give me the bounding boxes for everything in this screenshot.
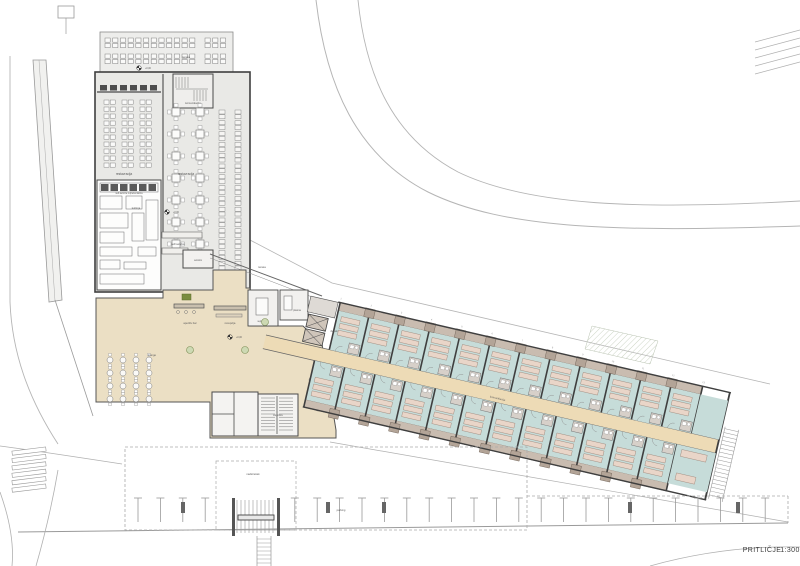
lounge-table (146, 357, 152, 363)
exit-stair-tread (712, 483, 726, 486)
banquet-seat (110, 156, 115, 160)
hotel-wing: 12345678910111213 komunikacija (251, 284, 747, 508)
sink (332, 367, 337, 371)
booth (235, 207, 241, 211)
lounge-table (120, 357, 126, 363)
sink (531, 387, 536, 391)
curb-left-2 (36, 470, 58, 566)
banquet-seat (122, 128, 127, 132)
banquet-seat (128, 121, 133, 125)
booth (219, 244, 225, 248)
chair (168, 198, 172, 202)
banquet-seat (122, 135, 127, 139)
kitchen-appliance (139, 184, 147, 191)
ramp-wall (277, 498, 280, 536)
booth (235, 153, 241, 157)
parked-element (736, 502, 740, 513)
parked-element (628, 502, 632, 513)
lounge-table (133, 383, 139, 389)
elevation-marker-icon (228, 335, 233, 340)
planter-box (182, 294, 191, 300)
kitchen-appliance (149, 184, 157, 191)
chair (122, 393, 125, 396)
chair (174, 117, 178, 121)
terrace-table (113, 59, 118, 63)
restaurant-label-left: restavracija (116, 172, 133, 176)
booth (235, 110, 241, 114)
booth (219, 212, 225, 216)
terrace-table (205, 43, 210, 47)
lounge-table (146, 370, 152, 376)
kitchen-unit (100, 213, 128, 228)
axis-number: 8 (552, 347, 554, 349)
chair (181, 176, 185, 180)
booth (219, 218, 225, 222)
banquet-seat (122, 142, 127, 146)
axis-number: 10 (611, 361, 615, 364)
chair (205, 220, 209, 224)
terrace-table (151, 54, 156, 58)
exit-stair-tread (722, 440, 736, 443)
sink (574, 423, 579, 427)
planter (187, 347, 194, 354)
banquet-seat (122, 100, 127, 104)
booth (219, 169, 225, 173)
chair (198, 139, 202, 143)
green-patch (585, 326, 658, 364)
exit-stair-tread (724, 432, 738, 435)
terrace-table (182, 43, 187, 47)
sink (453, 395, 458, 399)
terrace-table (128, 43, 133, 47)
terrace-table (220, 54, 225, 58)
banquet-seat (146, 135, 151, 139)
chair (122, 364, 125, 367)
bar-item (140, 85, 147, 91)
terrace-table (105, 54, 110, 58)
sink (423, 388, 428, 392)
booth (219, 175, 225, 179)
terrace-table (159, 54, 164, 58)
dining-table (172, 108, 180, 116)
self-service-counter-1 (162, 232, 202, 238)
banquet-seat (128, 163, 133, 167)
terrace-table (136, 43, 141, 47)
chair (168, 110, 172, 114)
banquet-seat (146, 128, 151, 132)
chair (205, 110, 209, 114)
terrace-table (213, 38, 218, 42)
chair (168, 154, 172, 158)
terrace-table (113, 38, 118, 42)
terrace-table (113, 54, 118, 58)
axis-number: 11 (642, 368, 645, 371)
banquet-seat (128, 114, 133, 118)
booth (235, 164, 241, 168)
elevator-label: dvigalo (330, 331, 338, 333)
sink (634, 437, 639, 441)
dining-table (196, 108, 204, 116)
banquet-seat (110, 100, 115, 104)
chair (109, 393, 112, 396)
banquet-seat (110, 128, 115, 132)
booth (235, 147, 241, 151)
chair (174, 227, 178, 231)
elevation-marker-icon (137, 66, 142, 71)
booth (219, 229, 225, 233)
chair (198, 205, 202, 209)
chair (181, 220, 185, 224)
dining-table (172, 152, 180, 160)
terrace-table (174, 38, 179, 42)
lounge-table (107, 383, 113, 389)
banquet-seat (140, 149, 145, 153)
bar-item (110, 85, 117, 91)
banquet-seat (104, 135, 109, 139)
elevation-marker-text: +0,00 (236, 337, 243, 339)
chair (135, 403, 138, 406)
chair (168, 176, 172, 180)
exit-stair-tread (719, 452, 733, 455)
sink (561, 394, 566, 398)
chair (135, 380, 138, 383)
kitchen-unit (100, 274, 144, 284)
drawing-scale: 1:300 (780, 547, 800, 554)
chair (174, 104, 178, 108)
chair (205, 154, 209, 158)
booth (235, 142, 241, 146)
chair (174, 161, 178, 165)
chair (192, 176, 196, 180)
booth (219, 126, 225, 130)
lounge-table (146, 396, 152, 402)
banquet-seat (140, 121, 145, 125)
chair (122, 380, 125, 383)
kitchen-unit (138, 247, 156, 256)
terrace-table (213, 54, 218, 58)
banquet-seat (146, 121, 151, 125)
booth (235, 244, 241, 248)
banquet-seat (104, 156, 109, 160)
sink (501, 380, 506, 384)
crosswalk-stripe (12, 462, 46, 470)
banquet-seat (128, 135, 133, 139)
kitchen-label: kuhinja (132, 206, 141, 210)
banquet-seat (122, 107, 127, 111)
terrace-table (105, 43, 110, 47)
windbreak-room (183, 250, 213, 268)
lounge-table (133, 370, 139, 376)
aperitif-bar-label: aperitiv bar (183, 321, 196, 325)
road-edge-outer (316, 0, 800, 229)
booth (235, 201, 241, 205)
booth (219, 153, 225, 157)
chair (168, 220, 172, 224)
booth (219, 201, 225, 205)
meeting-table (256, 298, 268, 315)
lounge-table (133, 396, 139, 402)
exit-stair-tread (725, 429, 739, 432)
exit-stair-rail (722, 430, 739, 502)
chair (192, 154, 196, 158)
chair (135, 390, 138, 393)
bar-item (100, 85, 107, 91)
axis-number: 2 (370, 305, 372, 307)
booth (235, 186, 241, 190)
parking-columns (134, 498, 769, 522)
chair (148, 393, 151, 396)
floor-plan-drawing: terasa komunikacija restavracija restavr… (0, 0, 800, 566)
exit-stair-tread (710, 491, 724, 494)
self-service-counter-label: self-service reprezentanca (116, 192, 144, 195)
booth (219, 121, 225, 125)
axis-number: 4 (431, 319, 433, 321)
chair (192, 220, 196, 224)
chair (205, 242, 209, 246)
kitchen-appliance (111, 184, 119, 191)
banquet-seat (128, 128, 133, 132)
terrace-label: terasa (182, 55, 190, 59)
booth (235, 250, 241, 254)
crosswalk-stripe (12, 454, 46, 462)
booth (235, 126, 241, 130)
booth (235, 255, 241, 259)
banquet-seat (128, 100, 133, 104)
sink (652, 414, 657, 418)
sink (393, 381, 398, 385)
chair (109, 364, 112, 367)
booth (235, 218, 241, 222)
reception-desk (214, 306, 246, 310)
lounge-table (120, 383, 126, 389)
chair (135, 354, 138, 357)
chair (198, 183, 202, 187)
wing-rooms: 12345678910111213 (251, 284, 747, 508)
parked-element (382, 502, 386, 513)
lounge-table (146, 383, 152, 389)
chair (198, 214, 202, 218)
terrace-table (213, 59, 218, 63)
banquet-seat (104, 107, 109, 111)
axis-number: 6 (491, 333, 493, 335)
small-terrace-label: terasa (258, 265, 266, 269)
bar-item (120, 85, 127, 91)
chair (174, 126, 178, 130)
dining-table (172, 218, 180, 226)
terrace-table (190, 43, 195, 47)
dining-table (196, 218, 204, 226)
banquet-seat (140, 114, 145, 118)
kitchen-unit (146, 200, 158, 240)
banquet-seat (128, 107, 133, 111)
booth (235, 180, 241, 184)
booth (235, 115, 241, 119)
planter (242, 347, 249, 354)
terrace-table (120, 43, 125, 47)
terrace-table (182, 38, 187, 42)
banquet-seat (146, 163, 151, 167)
banquet-seat (110, 135, 115, 139)
planter (262, 319, 269, 326)
chair (205, 198, 209, 202)
banquet-seat (128, 149, 133, 153)
reception-label: recepcija (225, 321, 236, 325)
chair (198, 170, 202, 174)
windbreak-label: vetrolov (194, 259, 203, 262)
sink (410, 359, 415, 363)
exit-stair-tread (718, 456, 732, 459)
axis-number: 9 (582, 354, 584, 356)
lounge-table (120, 396, 126, 402)
terrace-table (190, 59, 195, 63)
booth (235, 121, 241, 125)
chair (192, 242, 196, 246)
booth (219, 164, 225, 168)
exit-stair-tread (715, 471, 729, 474)
sink (362, 374, 367, 378)
chair (198, 192, 202, 196)
bar-item (130, 85, 137, 91)
chair (135, 393, 138, 396)
terrace-table (174, 43, 179, 47)
elevation-marker-text: +0,00 (173, 212, 180, 214)
axis-number: 12 (672, 375, 676, 378)
sink (591, 401, 596, 405)
chair (148, 364, 151, 367)
aperitif-bar-counter (174, 304, 204, 308)
booth (235, 169, 241, 173)
booth (219, 234, 225, 238)
ramp-wall (232, 498, 235, 536)
exit-stair-tread (716, 468, 730, 471)
drawing-title: PRITLIČJE (743, 545, 782, 554)
canopy-label: nadstrešek (246, 472, 260, 476)
terrace-table (182, 59, 187, 63)
banquet-seat (140, 107, 145, 111)
booth (235, 132, 241, 136)
booth (219, 266, 225, 270)
ramp-platform (238, 515, 274, 520)
office-label: pisarna (293, 309, 301, 312)
banquet-seat (128, 156, 133, 160)
chair (192, 198, 196, 202)
exit-stair-tread (714, 475, 728, 478)
chair (181, 132, 185, 136)
booth (219, 110, 225, 114)
banquet-seat (146, 100, 151, 104)
terrace-table (120, 59, 125, 63)
booth (235, 158, 241, 162)
terrace-table (190, 54, 195, 58)
chair (174, 183, 178, 187)
terrace-table (167, 43, 172, 47)
axis-number: 3 (400, 312, 402, 314)
lounge-table (107, 370, 113, 376)
exit-stair-tread (723, 436, 737, 439)
chair (198, 117, 202, 121)
parking-boundary (125, 447, 527, 530)
terrace-table (144, 43, 149, 47)
banquet-seat (140, 135, 145, 139)
banquet-seat (110, 149, 115, 153)
terrace-table (205, 59, 210, 63)
road-crosswalk-hatch (755, 30, 800, 74)
exit-stair-tread (720, 448, 734, 451)
chair (198, 104, 202, 108)
terrace-table (128, 59, 133, 63)
booth (219, 115, 225, 119)
terrace-table (167, 59, 172, 63)
kitchen-unit (100, 260, 120, 269)
road-edge-inner (358, 0, 800, 205)
curb-left-3 (0, 492, 13, 566)
chair (148, 403, 151, 406)
booth (219, 223, 225, 227)
elevation-marker-text: +0,00 (145, 68, 152, 70)
chair (174, 139, 178, 143)
restaurant-label-right: restavracija (178, 172, 195, 176)
terrace-table (174, 54, 179, 58)
office-desk (284, 296, 292, 310)
pergola-strip (33, 60, 62, 302)
chair (192, 132, 196, 136)
sink (622, 408, 627, 412)
chair (205, 176, 209, 180)
banquet-seat (104, 142, 109, 146)
self-service-label: self-service (171, 242, 185, 246)
exit-stair-tread (713, 479, 727, 482)
south-annex: stopnišče (212, 392, 298, 436)
terrace-table (205, 54, 210, 58)
chair (148, 380, 151, 383)
chair (109, 377, 112, 380)
chair (174, 192, 178, 196)
terrace-table (136, 38, 141, 42)
chair (109, 354, 112, 357)
banquet-seat (140, 163, 145, 167)
terrace-table (190, 38, 195, 42)
chair (148, 367, 151, 370)
sink (604, 430, 609, 434)
booth (235, 175, 241, 179)
chair (109, 367, 112, 370)
terrace-table (167, 38, 172, 42)
terrace-table (105, 59, 110, 63)
banquet-seat (122, 114, 127, 118)
chair (168, 132, 172, 136)
terrace-table (113, 43, 118, 47)
exit-stair-tread (718, 460, 732, 463)
terrace-table (144, 59, 149, 63)
chair (122, 390, 125, 393)
sink (483, 402, 488, 406)
pergola-tail (55, 300, 93, 416)
booth (219, 190, 225, 194)
sink (544, 416, 549, 420)
dining-table (172, 196, 180, 204)
chair (198, 161, 202, 165)
banquet-seat (146, 114, 151, 118)
sink (380, 352, 385, 356)
banquet-seat (110, 163, 115, 167)
kitchen-appliance (120, 184, 128, 191)
booth (235, 229, 241, 233)
crosswalk-stripes (12, 447, 46, 492)
chair (174, 205, 178, 209)
banquet-seat (122, 156, 127, 160)
terrace-table (205, 38, 210, 42)
terrace-table (136, 54, 141, 58)
